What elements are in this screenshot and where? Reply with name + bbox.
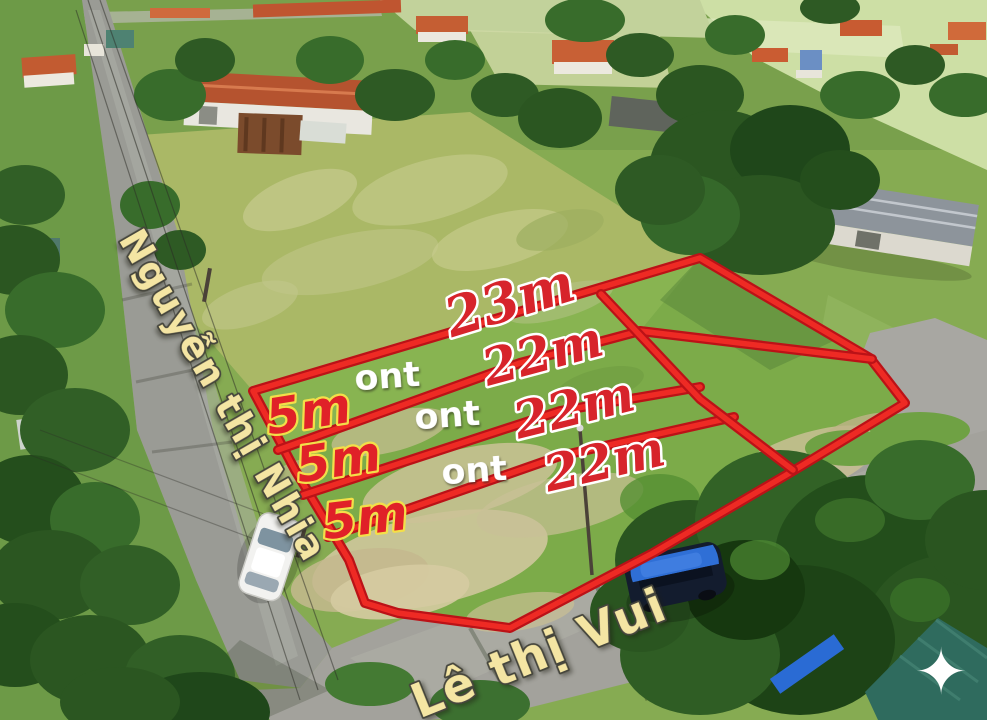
white-awning	[299, 120, 346, 143]
sparkle-icon: ✦	[914, 636, 968, 710]
zoning-label-ont-3: ont	[440, 449, 508, 493]
aerial-photo: 23m 22m 22m 22m 5m 5m 5m ont ont ont Ngu…	[0, 0, 987, 720]
zoning-label-ont-1: ont	[353, 355, 421, 399]
zoning-label-ont-2: ont	[413, 394, 481, 438]
